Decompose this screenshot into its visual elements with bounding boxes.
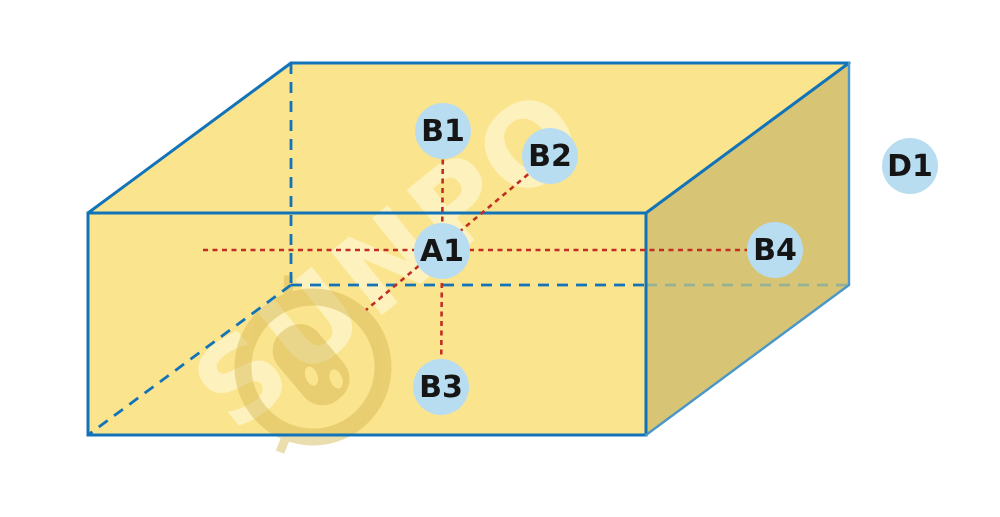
points-layer: A1B1B2B3B4D1 [0,0,1000,517]
point-B2[interactable]: B2 [522,128,578,184]
point-A1[interactable]: A1 [414,223,470,279]
point-B3[interactable]: B3 [413,359,469,415]
point-D1[interactable]: D1 [882,138,938,194]
diagram-canvas: SUNPO [0,0,1000,517]
point-B4[interactable]: B4 [747,222,803,278]
point-B1[interactable]: B1 [415,103,471,159]
